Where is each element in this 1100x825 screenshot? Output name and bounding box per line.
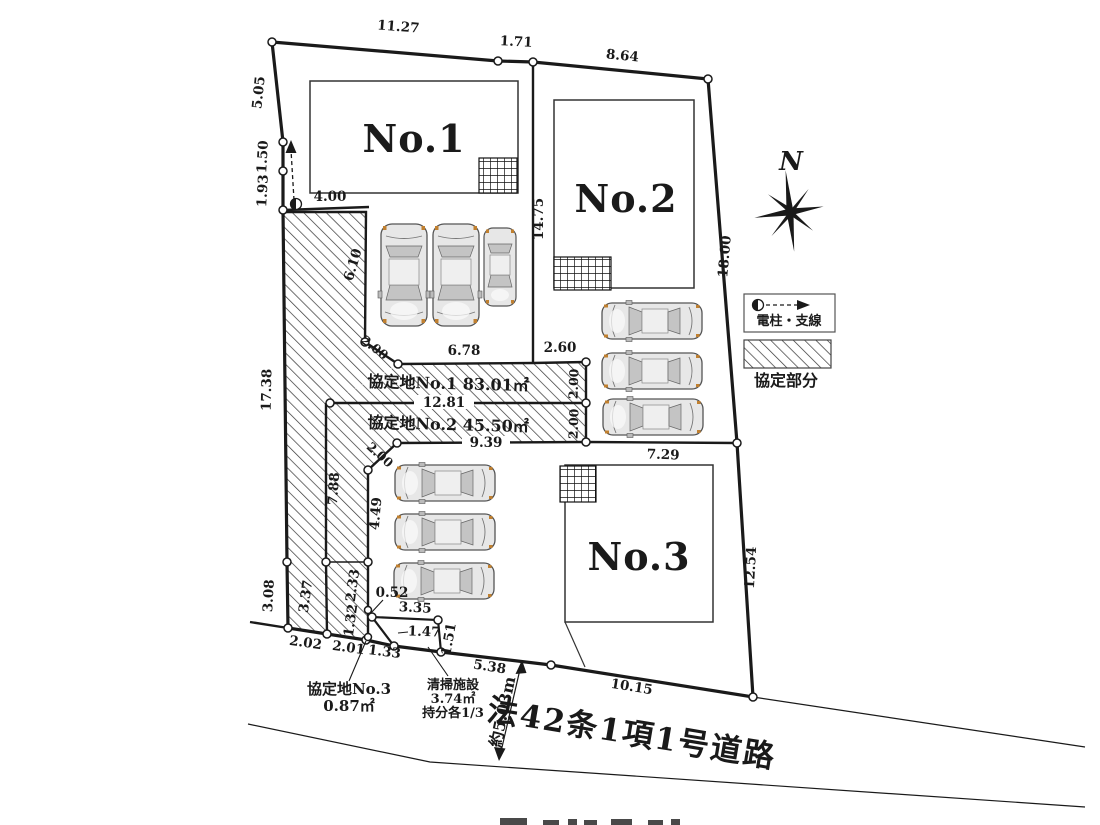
dim-1-33: 1.33 <box>367 642 402 662</box>
road-name-label: 法42条1項1号道路 <box>485 692 779 776</box>
north-label: N <box>778 147 804 177</box>
cleaning-share: 持分各1/3 <box>422 705 484 721</box>
no3-porch-grid <box>560 466 596 502</box>
kyotei3-name: 協定地No.3 <box>307 680 391 698</box>
dim-6-78: 6.78 <box>448 343 481 359</box>
dim-7-29: 7.29 <box>646 446 679 463</box>
dim-4-49: 4.49 <box>367 497 386 531</box>
utility-pole-icon <box>286 140 302 210</box>
cleaning-area: 3.74㎡ <box>431 691 476 707</box>
site-plan-svg: N 電柱・支線 協定部分 No.1 No.2 No.3 11.27 1.71 8… <box>0 0 1100 825</box>
dim-2-00-d: 2.00 <box>565 408 581 439</box>
dim-2-01: 2.01 <box>331 638 366 658</box>
kyotei3-area: 0.87㎡ <box>323 697 375 715</box>
dim-5-05: 5.05 <box>249 75 268 109</box>
legend: 電柱・支線 協定部分 <box>744 294 835 390</box>
dim-1-93: 1.93 <box>254 174 272 208</box>
lot-label-no2: No.2 <box>574 176 677 221</box>
dim-4-00: 4.00 <box>314 189 347 205</box>
dim-3-35: 3.35 <box>398 599 432 617</box>
dim-7-88: 7.88 <box>325 472 343 506</box>
north-compass <box>750 167 828 256</box>
dim-9-39: 9.39 <box>470 435 503 451</box>
dim-14-75: 14.75 <box>531 198 547 240</box>
dim-1-71: 1.71 <box>499 33 533 51</box>
car-icon <box>394 561 494 602</box>
car-icon <box>484 228 516 306</box>
lot-label-no3: No.3 <box>587 534 690 579</box>
dim-2-60: 2.60 <box>544 340 577 356</box>
dim-2-00-c: 2.00 <box>565 368 581 399</box>
dim-1-51: 1.51 <box>438 622 459 657</box>
car-icon <box>395 463 495 504</box>
car-icon <box>430 224 482 326</box>
dim-1-50: 1.50 <box>254 140 272 174</box>
car-icon <box>603 397 703 438</box>
no2-porch-grid <box>554 257 611 290</box>
dim-18-00: 18.00 <box>715 235 735 279</box>
dim-12-81: 12.81 <box>423 395 465 411</box>
site-plan-page: N 電柱・支線 協定部分 No.1 No.2 No.3 11.27 1.71 8… <box>0 0 1100 825</box>
dim-1-47: 1.47 <box>407 623 440 640</box>
car-icon <box>602 301 702 342</box>
lot-label-no1: No.1 <box>362 116 465 161</box>
cleaning-name: 清掃施設 <box>427 677 480 693</box>
car-icon <box>395 512 495 553</box>
cutoff-caption-fragments <box>500 818 680 825</box>
dim-3-08: 3.08 <box>260 579 278 613</box>
car-icon <box>602 351 702 392</box>
legend-pole-label: 電柱・支線 <box>756 313 822 329</box>
dim-8-64: 8.64 <box>605 46 639 65</box>
dim-2-02: 2.02 <box>288 633 323 653</box>
no1-porch-grid <box>479 158 517 193</box>
car-icon <box>378 224 430 326</box>
legend-hatch-swatch <box>744 340 831 368</box>
legend-agreement-label: 協定部分 <box>754 371 818 390</box>
dim-11-27: 11.27 <box>377 17 420 36</box>
dim-12-54: 12.54 <box>742 546 760 589</box>
dim-17-38: 17.38 <box>259 369 276 412</box>
